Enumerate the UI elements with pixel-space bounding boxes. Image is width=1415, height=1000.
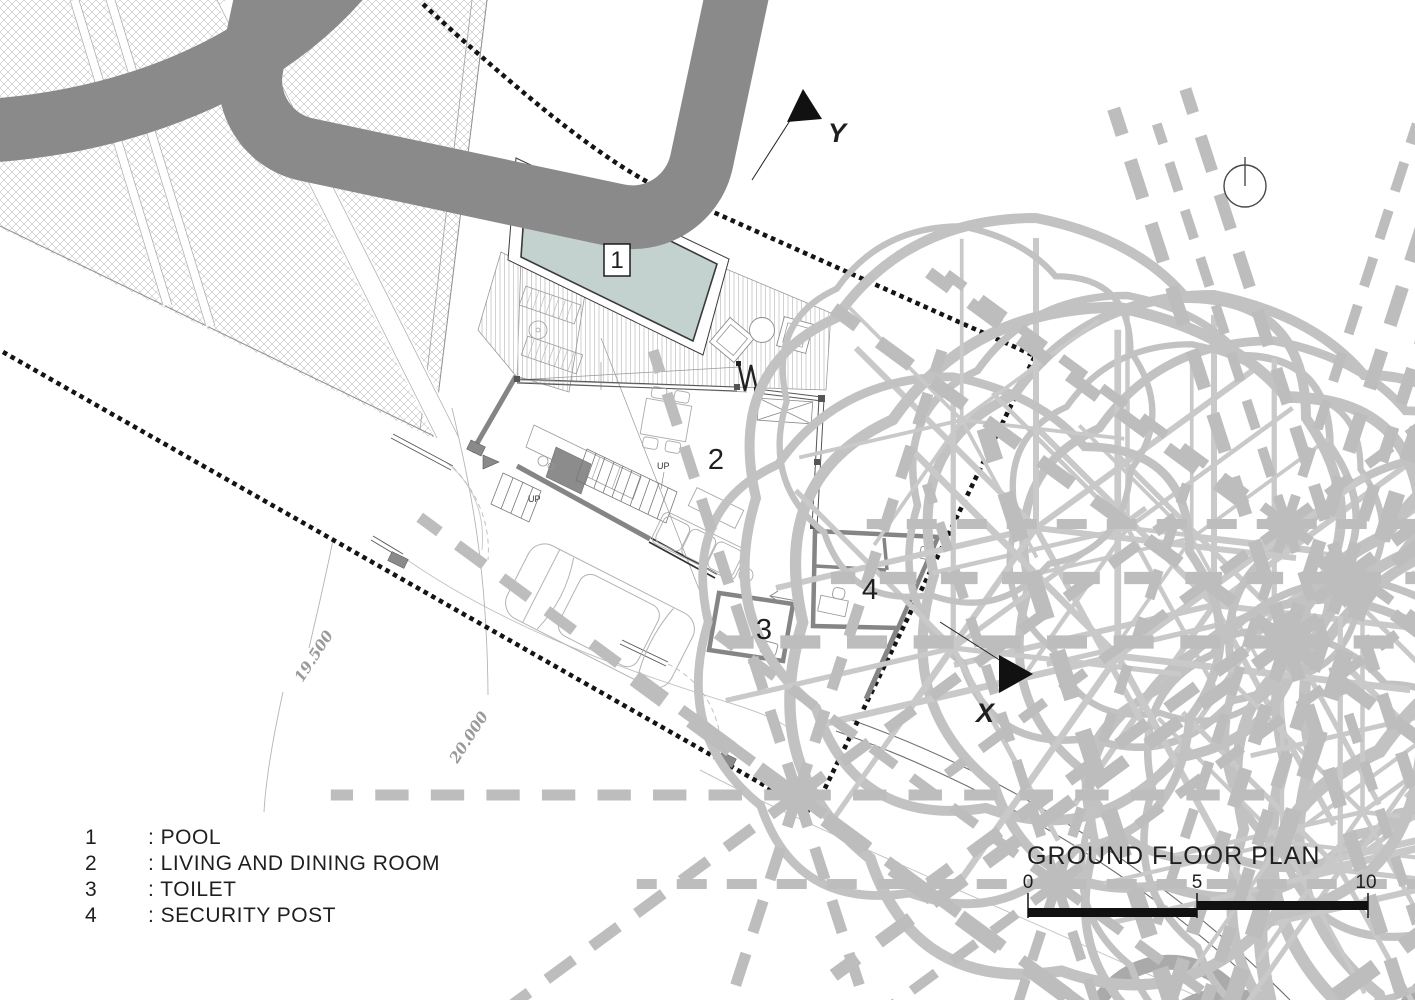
drawing-title: GROUND FLOOR PLAN (1027, 842, 1320, 870)
room-label-toilet: 3 (756, 614, 772, 646)
legend-num: 3 (85, 878, 97, 901)
scale-tick-0: 0 (1023, 872, 1034, 893)
entry-arrow (483, 455, 499, 469)
contour-label-20000: 20.000 (445, 708, 492, 767)
floor-plan-drawing: 19.500 20.000 (0, 0, 1415, 1000)
scale-tick-10: 10 (1355, 872, 1376, 893)
x-axis-label: X (974, 698, 996, 728)
room-label-pool: 1 (610, 247, 623, 274)
legend-num: 2 (85, 852, 97, 875)
contour-label-19500: 19.500 (291, 627, 338, 685)
security-desk (818, 585, 851, 617)
legend-label: : SECURITY POST (148, 904, 336, 927)
legend-label: : LIVING AND DINING ROOM (148, 852, 440, 875)
floor-plan-page: 19.500 20.000 (0, 0, 1415, 1000)
stairs-up-label: UP (528, 494, 541, 504)
car (499, 538, 700, 695)
north-indicator-icon (1224, 157, 1266, 207)
y-axis-label: Y (828, 118, 849, 148)
kitchen-counter (526, 425, 641, 499)
room-label-living: 2 (708, 444, 724, 476)
legend-label: : TOILET (148, 878, 236, 901)
gate-swing-arcs (453, 467, 722, 748)
legend-label: : POOL (148, 826, 221, 849)
room-label-security: 4 (862, 574, 878, 606)
stairs-up-label: UP (657, 461, 670, 471)
legend: 1 : POOL 2 : LIVING AND DINING ROOM 3 : … (85, 826, 440, 927)
scale-tick-5: 5 (1192, 872, 1203, 893)
y-axis-marker: Y (752, 89, 849, 180)
legend-num: 1 (85, 826, 97, 849)
deck-table (750, 318, 775, 343)
legend-num: 4 (85, 904, 97, 927)
